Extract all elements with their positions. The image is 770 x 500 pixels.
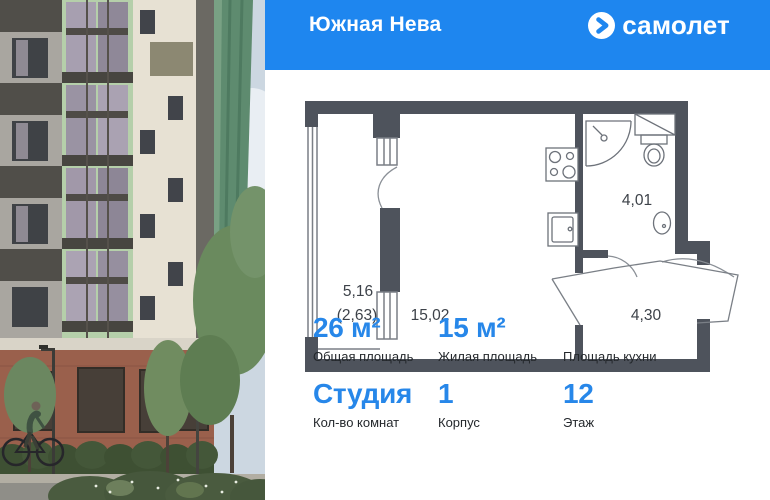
kitchen-stove-icon	[546, 148, 578, 181]
apartment-stats: 26 м² Общая площадь 15 м² Жилая площадь …	[313, 312, 743, 432]
stats-row-details: Студия Кол-во комнат 1 Корпус 12 Этаж	[313, 378, 743, 432]
panel-header: Южная Нева самолет	[265, 0, 770, 70]
listing-card: Южная Нева самолет	[0, 0, 770, 500]
kitchen-sink-icon	[548, 213, 578, 246]
stat-building: 1 Корпус	[438, 378, 563, 432]
apartment-panel: Южная Нева самолет	[265, 0, 770, 500]
stat-living-area: 15 м² Жилая площадь	[438, 312, 563, 366]
stat-value: 1	[438, 378, 563, 410]
stats-row-areas: 26 м² Общая площадь 15 м² Жилая площадь …	[313, 312, 743, 366]
stat-rooms: Студия Кол-во комнат	[313, 378, 438, 432]
balcony-area-label: 5,16	[343, 283, 373, 300]
washbasin-icon	[654, 212, 671, 234]
brand-chevron-icon	[588, 12, 615, 39]
stat-label: Жилая площадь	[438, 348, 563, 366]
stat-value: 12	[563, 378, 688, 410]
toilet-icon	[635, 114, 675, 166]
stat-value	[563, 312, 688, 344]
brand-name: самолет	[622, 11, 730, 39]
stat-label: Кол-во комнат	[313, 414, 438, 432]
stat-kitchen-area: Площадь кухни	[563, 312, 688, 366]
project-title: Южная Нева	[309, 11, 441, 39]
brand-logo[interactable]: самолет	[588, 11, 730, 39]
shower-icon	[586, 121, 631, 166]
stat-value: 26 м²	[313, 312, 438, 344]
stat-label: Этаж	[563, 414, 688, 432]
stat-value: Студия	[313, 378, 438, 410]
stat-floor: 12 Этаж	[563, 378, 688, 432]
building-photo-illustration	[0, 0, 265, 500]
bathroom-area-label: 4,01	[622, 192, 652, 209]
stat-value: 15 м²	[438, 312, 563, 344]
stat-label: Площадь кухни	[563, 348, 688, 366]
stat-label: Корпус	[438, 414, 563, 432]
stat-total-area: 26 м² Общая площадь	[313, 312, 438, 366]
building-photo	[0, 0, 265, 500]
stat-label: Общая площадь	[313, 348, 438, 366]
